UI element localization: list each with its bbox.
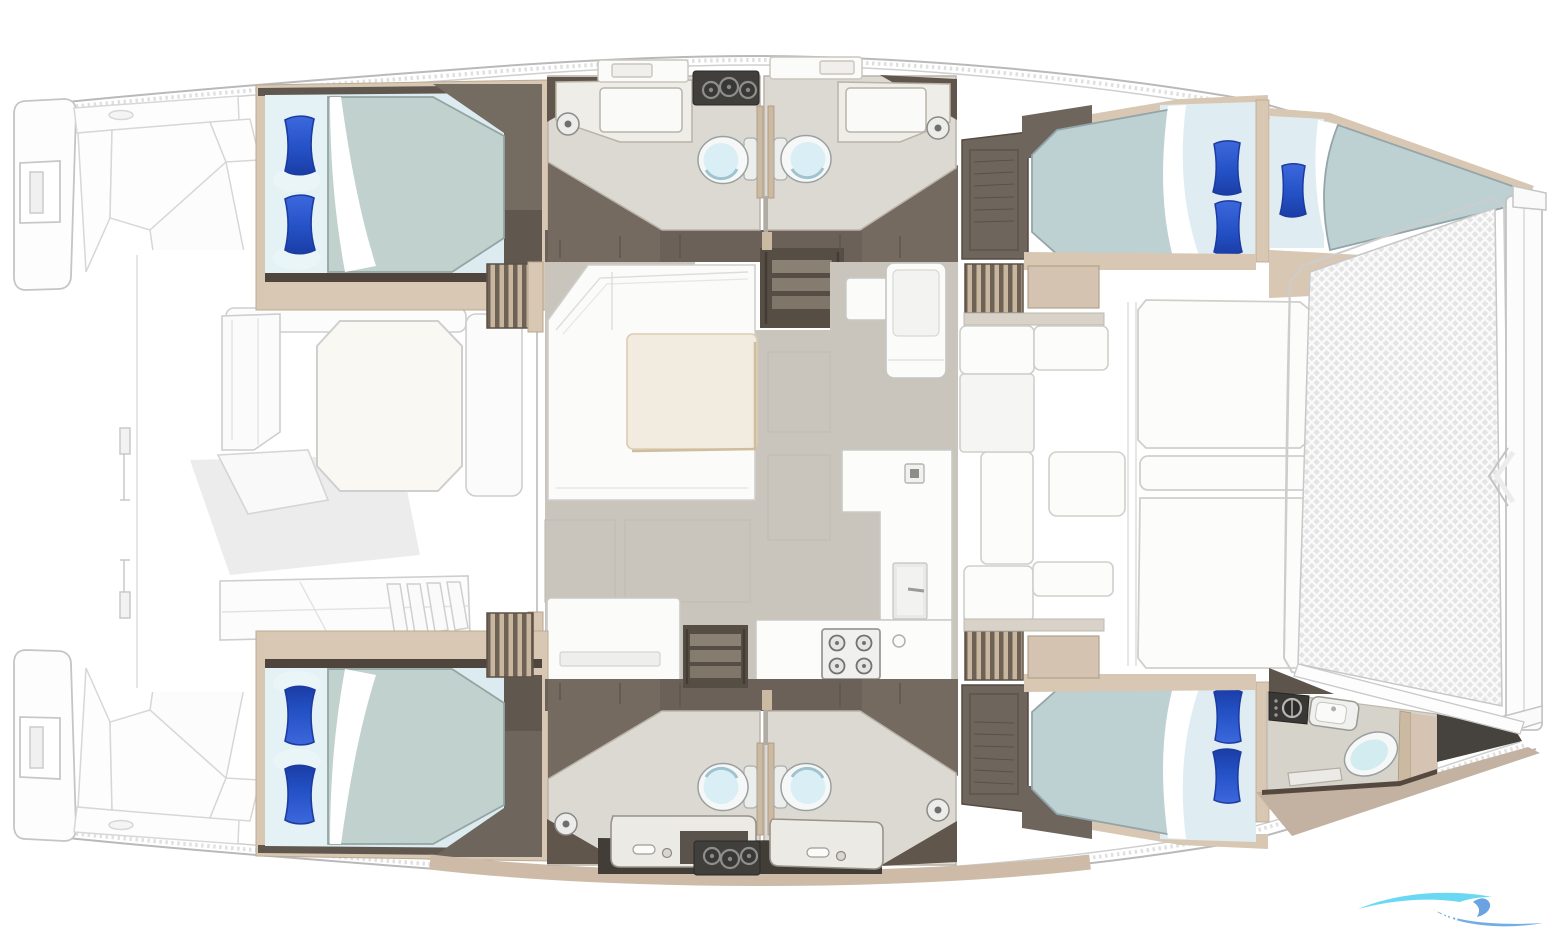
svg-text:OM: OM — [1431, 905, 1461, 926]
